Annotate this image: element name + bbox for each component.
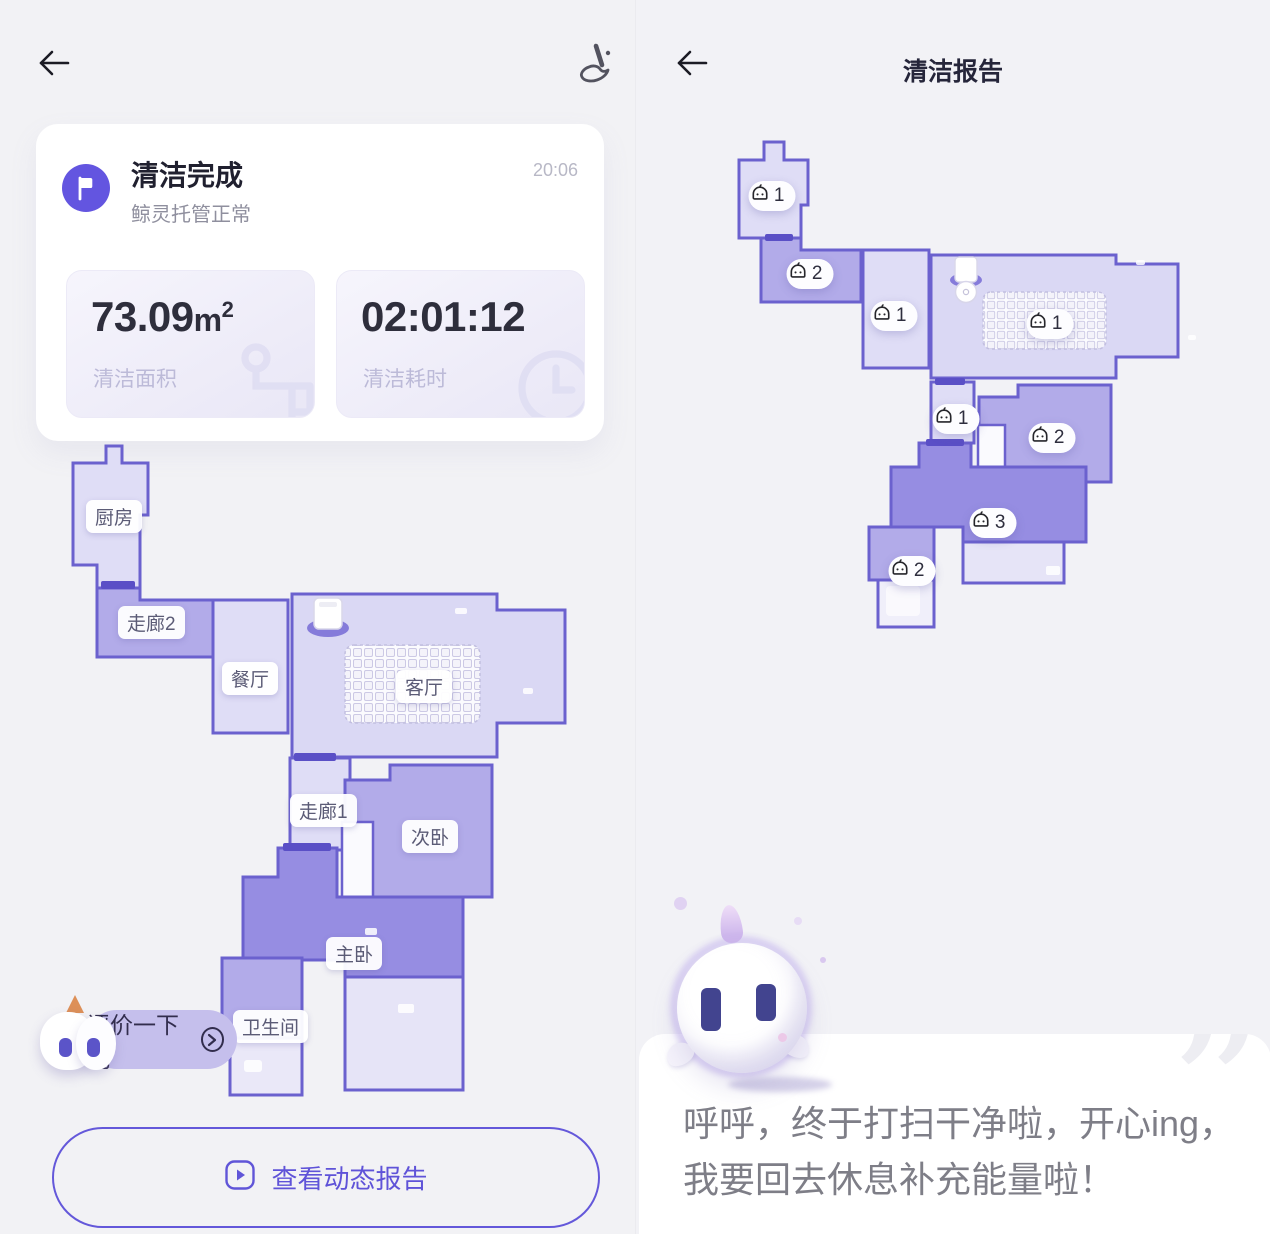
- room-label-bedroom2: 次卧: [402, 820, 458, 853]
- mascot-eye: [701, 988, 721, 1031]
- broom-icon: [574, 77, 618, 94]
- badge-bathroom: × 2: [889, 556, 936, 586]
- clean-area-card: 73.09m2 清洁面积: [66, 270, 315, 418]
- back-button[interactable]: [36, 48, 80, 88]
- mascot-eye: [756, 984, 776, 1021]
- room-label-living: 客厅: [396, 670, 452, 703]
- mascot-shadow: [728, 1077, 832, 1092]
- badge-corridor1: × 1: [933, 404, 980, 434]
- deco-dot: [674, 897, 687, 910]
- summary-panel: 清洁完成 鲸灵托管正常 20:06 73.09m2 清洁面积 02:01:12 …: [0, 0, 635, 1234]
- cleaning-report-screen: 清洁完成 鲸灵托管正常 20:06 73.09m2 清洁面积 02:01:12 …: [0, 0, 1270, 1234]
- badge-dining: × 1: [871, 301, 918, 331]
- badge-corridor2: × 2: [787, 259, 834, 289]
- ghost-eye: [87, 1038, 100, 1057]
- ghost-eye: [59, 1038, 72, 1057]
- finish-time: 20:06: [533, 160, 578, 181]
- room-label-corridor2: 走廊2: [118, 606, 185, 639]
- clean-area-value: 73.09m2: [91, 293, 233, 341]
- flag-icon: [62, 164, 110, 212]
- badge-bedroom2: × 2: [1029, 423, 1076, 453]
- room-label-kitchen: 厨房: [86, 500, 142, 533]
- chevron-right-icon: [201, 1027, 224, 1052]
- mascot-horn: [718, 904, 744, 944]
- back-arrow-icon: [36, 48, 80, 78]
- summary-card: 清洁完成 鲸灵托管正常 20:06 73.09m2 清洁面积 02:01:12 …: [36, 124, 604, 441]
- robot-mascot: [666, 885, 861, 1110]
- badge-living: × 1: [1027, 309, 1074, 339]
- clock-icon: [504, 336, 585, 418]
- clean-again-button[interactable]: [574, 42, 618, 90]
- page-title: 清洁报告: [636, 52, 1270, 88]
- clean-duration-card: 02:01:12 清洁耗时: [336, 270, 585, 418]
- floor-map-counts[interactable]: × 1 × 2 × 1 × 1 × 1 × 2: [636, 130, 1270, 650]
- deco-dot: [778, 1033, 787, 1042]
- report-panel: 清洁报告: [635, 0, 1270, 1234]
- room-label-dining: 餐厅: [222, 662, 278, 695]
- view-dynamic-report-button[interactable]: 查看动态报告: [52, 1127, 600, 1228]
- room-bathroom-lower: [230, 1038, 302, 1095]
- robot-on-map: [956, 282, 977, 303]
- status-title: 清洁完成: [131, 154, 243, 194]
- mascot-quote-text: 呼呼，终于打扫干净啦，开心ing，我要回去休息补充能量啦！: [683, 1096, 1251, 1208]
- clean-duration-label: 清洁耗时: [363, 363, 447, 393]
- room-label-master: 主卧: [326, 937, 382, 970]
- ghost-horn: [66, 995, 84, 1013]
- badge-master: × 3: [970, 508, 1017, 538]
- view-dynamic-report-label: 查看动态报告: [271, 1159, 427, 1196]
- room-label-bathroom: 卫生间: [233, 1010, 308, 1043]
- deco-dot: [794, 917, 802, 925]
- room-label-corridor1: 走廊1: [290, 794, 357, 827]
- mop-stand-icon: [234, 336, 315, 418]
- ghost-mascot: [32, 990, 142, 1090]
- play-icon: [224, 1159, 256, 1196]
- status-subtitle: 鲸灵托管正常: [131, 198, 251, 227]
- badge-kitchen: × 1: [749, 181, 796, 211]
- clean-duration-value: 02:01:12: [361, 293, 525, 341]
- room-master-lower: [963, 542, 1064, 583]
- clean-area-label: 清洁面积: [93, 363, 177, 393]
- dock-icon: [307, 598, 349, 637]
- mascot-body: [677, 943, 807, 1073]
- nogo-zone: [342, 822, 373, 897]
- deco-dot: [820, 957, 826, 963]
- room-master-lower: [345, 977, 463, 1090]
